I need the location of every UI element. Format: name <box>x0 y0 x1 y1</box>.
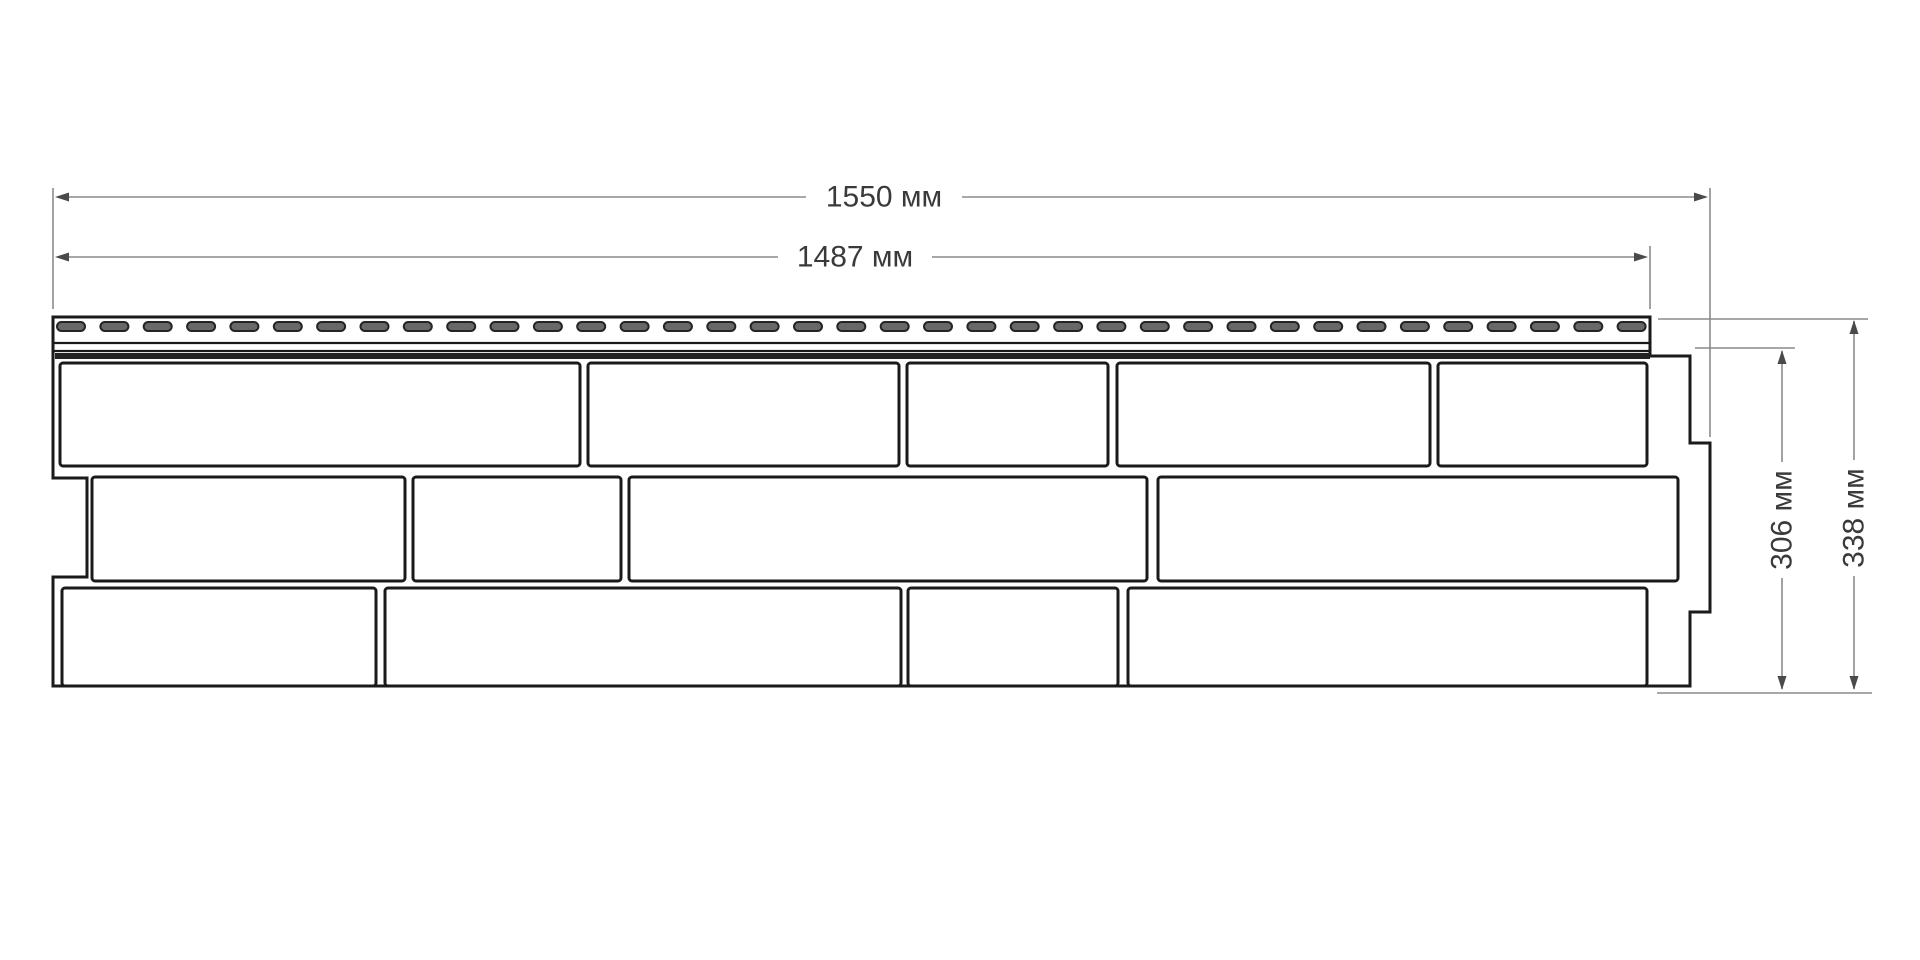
brick <box>385 588 901 686</box>
brick <box>413 477 621 581</box>
arrow-left-icon <box>55 253 69 262</box>
arrow-left-icon <box>55 193 69 202</box>
brick <box>907 363 1108 466</box>
brick <box>908 588 1118 686</box>
brick <box>1128 588 1647 686</box>
arrow-right-icon <box>1634 253 1648 262</box>
brick <box>60 363 580 466</box>
arrow-down-icon <box>1778 676 1787 690</box>
dimension-useful-width: 1487 мм <box>55 241 1650 310</box>
brick <box>629 477 1147 581</box>
arrow-up-icon <box>1850 320 1859 334</box>
brick <box>62 588 376 686</box>
brick <box>1117 363 1430 466</box>
panel-lock-band <box>55 353 1650 359</box>
brick <box>588 363 899 466</box>
arrow-down-icon <box>1850 676 1859 690</box>
brick <box>1438 363 1647 466</box>
brick <box>92 477 405 581</box>
arrow-right-icon <box>1694 193 1708 202</box>
panel-drawing: 1550 мм 1487 мм 306 мм <box>0 0 1920 960</box>
drawing-canvas: 1550 мм 1487 мм 306 мм <box>0 0 1920 960</box>
brick-row-1 <box>60 363 1647 466</box>
arrow-up-icon <box>1778 350 1787 364</box>
brick <box>1158 477 1678 581</box>
dimension-label-useful-width: 1487 мм <box>797 241 913 274</box>
brick-row-2 <box>92 477 1678 581</box>
brick-row-3 <box>62 588 1647 686</box>
dimension-label-total-height: 338 мм <box>1838 468 1871 568</box>
dimension-label-total-width: 1550 мм <box>826 181 942 214</box>
nail-slots <box>57 322 1646 331</box>
dimension-label-useful-height: 306 мм <box>1766 470 1799 570</box>
